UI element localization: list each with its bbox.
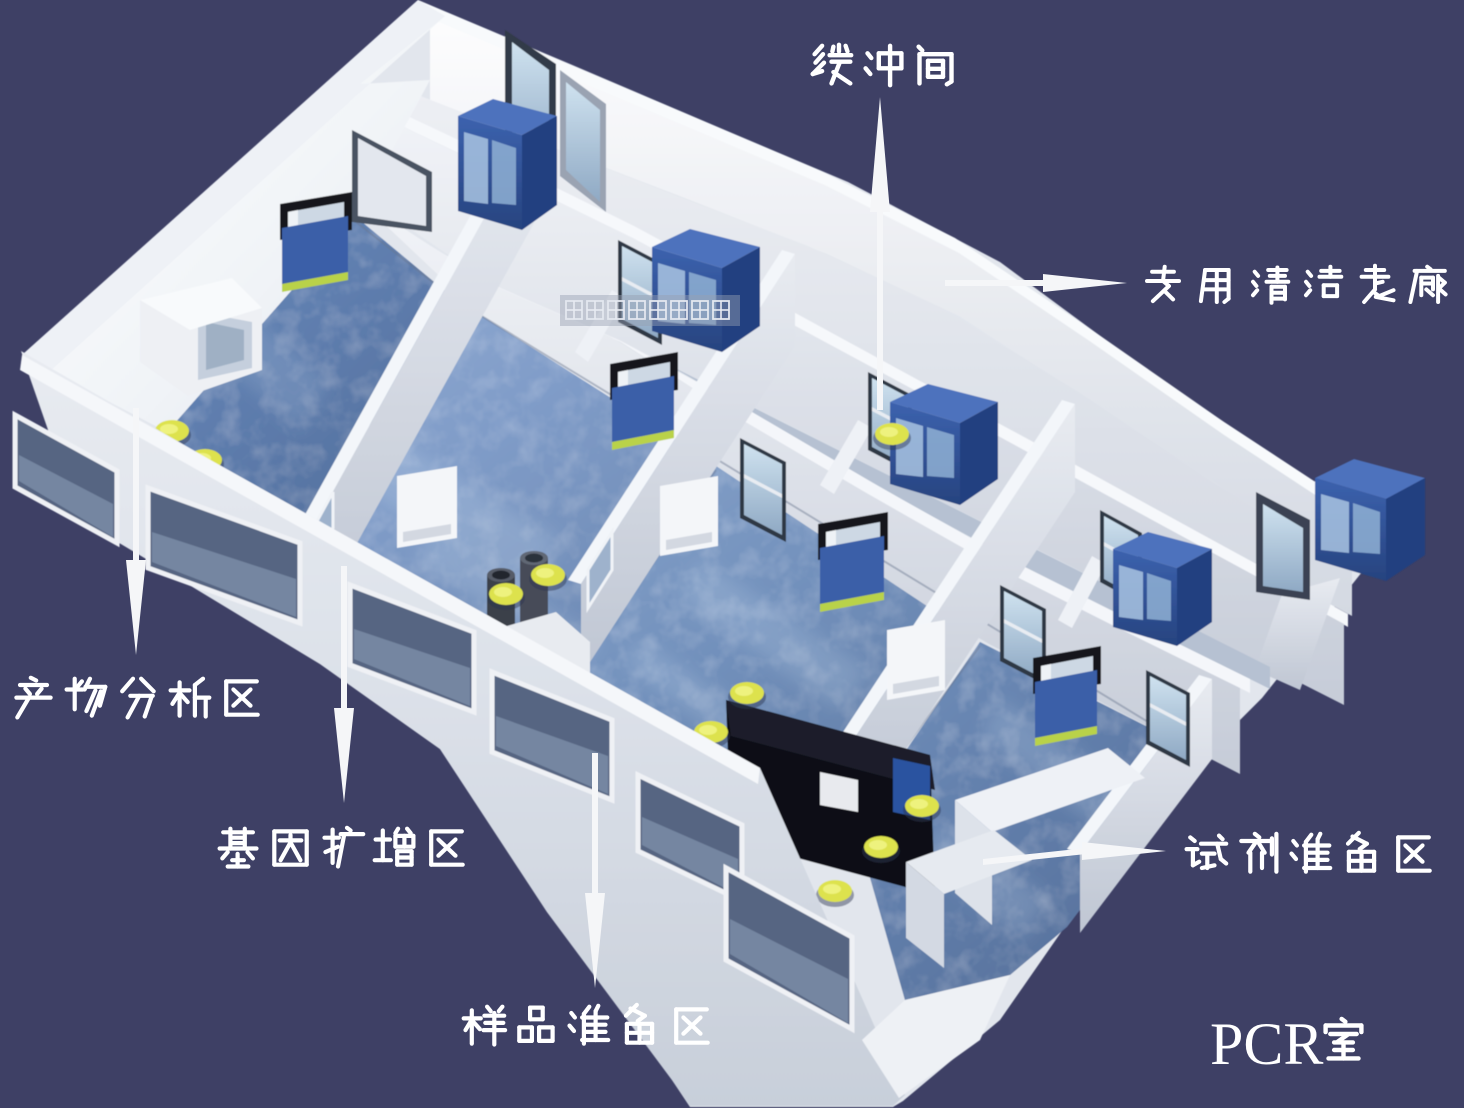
- svg-text:PCR: PCR: [1210, 1011, 1323, 1077]
